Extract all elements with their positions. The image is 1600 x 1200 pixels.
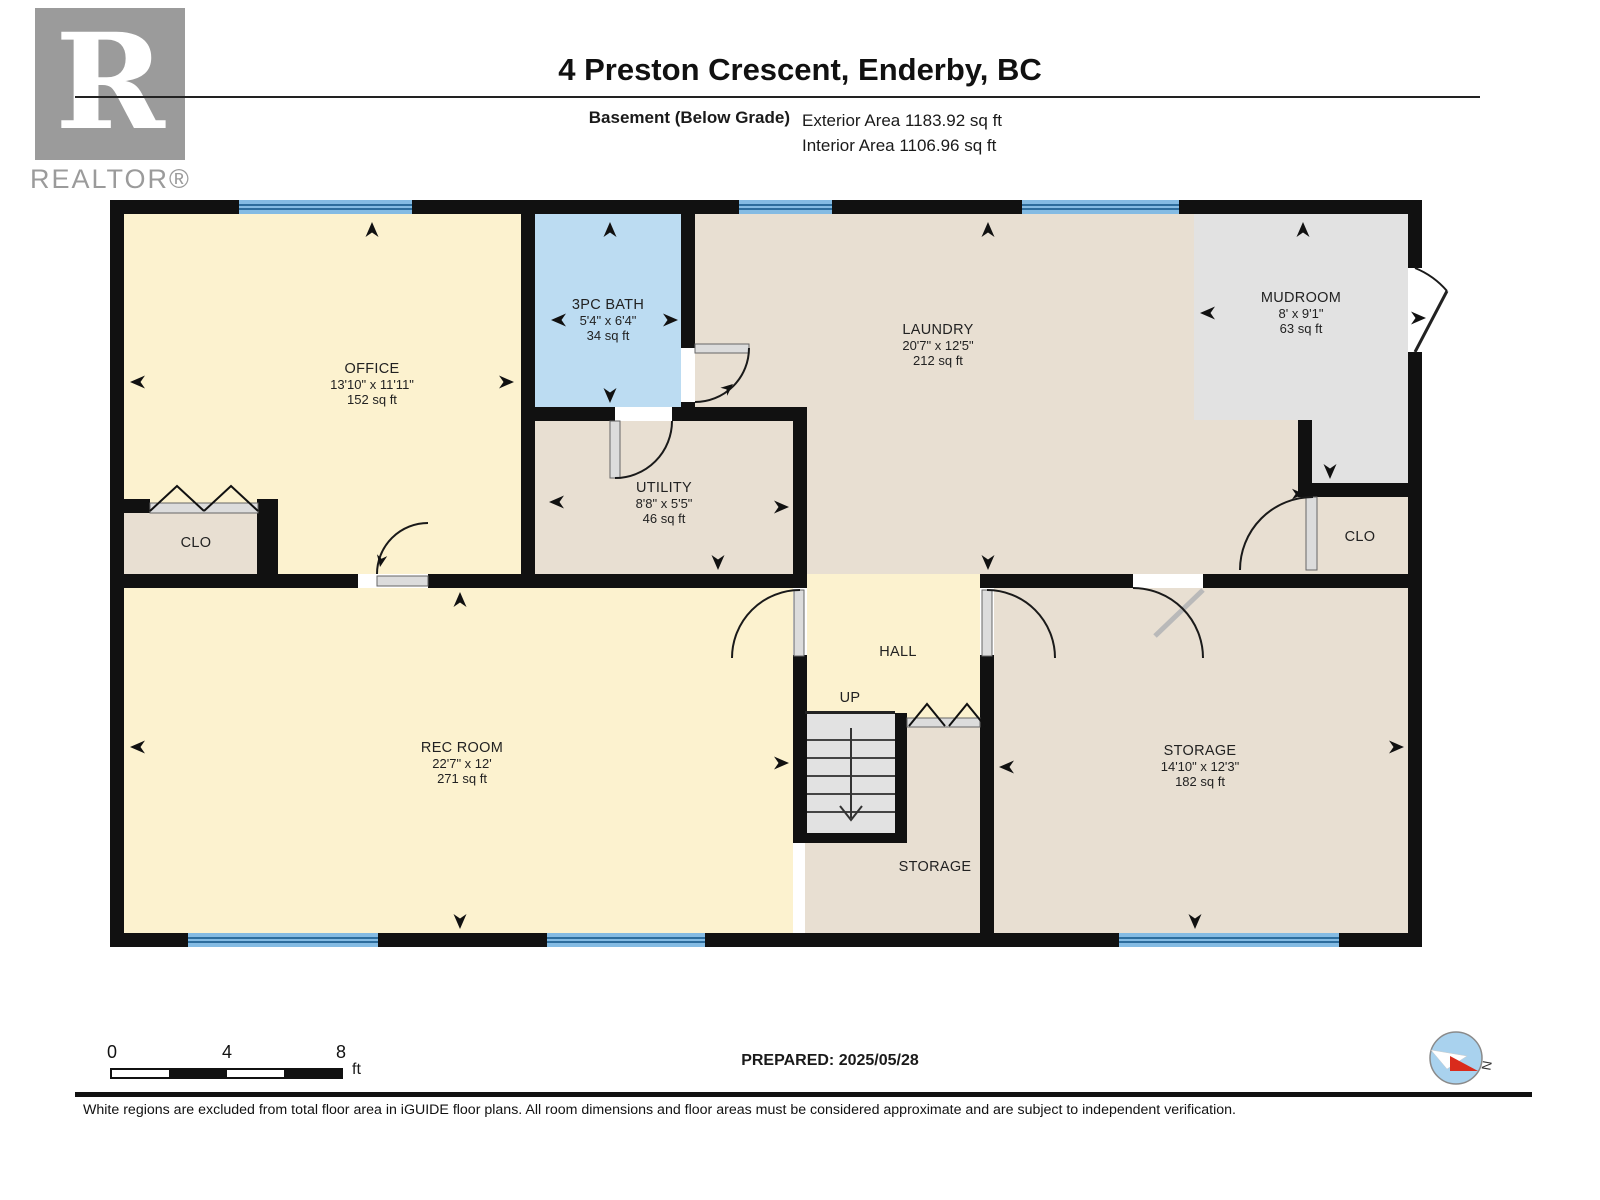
- scale-bar: [110, 1068, 343, 1079]
- room-mudroom-low: [1312, 420, 1408, 483]
- hall-left-door-leaf: [794, 590, 804, 656]
- window-bottom-storage: [1117, 933, 1341, 947]
- room-laundry: [695, 214, 1194, 407]
- wall-mid-b: [428, 574, 807, 588]
- label-closet-left: CLO: [181, 535, 212, 551]
- wall-bath-bottom-left: [521, 407, 615, 421]
- room-name: STORAGE: [1161, 743, 1240, 759]
- wall-closet-left-right: [257, 499, 278, 574]
- label-bath: 3PC BATH 5'4" x 6'4" 34 sq ft: [572, 297, 644, 343]
- wall-bath-right: [681, 214, 695, 348]
- label-mudroom: MUDROOM 8' x 9'1" 63 sq ft: [1261, 290, 1341, 336]
- room-laundry-low: [807, 407, 1194, 574]
- room-dims: 13'10" x 11'11": [330, 377, 414, 392]
- stairs-direction: UP: [840, 690, 861, 706]
- room-area: 212 sq ft: [902, 353, 973, 368]
- window-bottom-rec-2: [545, 933, 707, 947]
- wall-exterior-right-lower: [1408, 352, 1422, 947]
- label-laundry: LAUNDRY 20'7" x 12'5" 212 sq ft: [902, 322, 973, 368]
- room-name: HALL: [879, 644, 916, 660]
- scale-unit: ft: [352, 1061, 361, 1079]
- label-utility: UTILITY 8'8" x 5'5" 46 sq ft: [636, 480, 693, 526]
- disclaimer-text: White regions are excluded from total fl…: [83, 1102, 1543, 1118]
- label-storage: STORAGE 14'10" x 12'3" 182 sq ft: [1161, 743, 1240, 789]
- label-storage-small: STORAGE: [899, 859, 972, 875]
- exterior-area: Exterior Area 1183.92 sq ft: [802, 108, 1122, 133]
- room-name: 3PC BATH: [572, 297, 644, 313]
- room-name: MUDROOM: [1261, 290, 1341, 306]
- label-stairs-up: UP: [840, 690, 861, 706]
- office-door-leaf: [377, 576, 428, 586]
- label-closet-right: CLO: [1345, 529, 1376, 545]
- room-name: OFFICE: [330, 361, 414, 377]
- exterior-door-leaf: [1415, 291, 1447, 352]
- window-bottom-rec-1: [186, 933, 380, 947]
- wall-stairs-right: [895, 713, 907, 843]
- room-area: 34 sq ft: [572, 328, 644, 343]
- arrow-mudroom-right: [1411, 312, 1426, 325]
- wall-mudroom-horz: [1298, 483, 1408, 497]
- scale-tick-0: 0: [97, 1042, 127, 1063]
- wall-office-right: [521, 214, 535, 574]
- room-dims: 22'7" x 12': [421, 756, 503, 771]
- label-hall: HALL: [879, 644, 916, 660]
- exterior-door-arc: [1415, 268, 1447, 291]
- room-area: 46 sq ft: [636, 511, 693, 526]
- wall-mid-d: [1203, 574, 1408, 588]
- title-divider: [75, 96, 1480, 98]
- stairs-top-line: [805, 711, 895, 714]
- floor-label: Basement (Below Grade): [440, 108, 790, 128]
- wall-bath-bottom-right: [672, 407, 807, 421]
- realtor-brand-text: REALTOR®: [30, 164, 200, 195]
- room-dims: 20'7" x 12'5": [902, 338, 973, 353]
- wall-stairs-bottom: [793, 833, 907, 843]
- wall-mid-c: [980, 574, 1133, 588]
- floorplan-page: R REALTOR® 4 Preston Crescent, Enderby, …: [0, 0, 1600, 1200]
- room-name: LAUNDRY: [902, 322, 973, 338]
- room-name: CLO: [1345, 529, 1376, 545]
- room-name: CLO: [181, 535, 212, 551]
- area-summary: Exterior Area 1183.92 sq ft Interior Are…: [802, 108, 1122, 158]
- window-top-laundry-1: [737, 200, 834, 214]
- room-name: STORAGE: [899, 859, 972, 875]
- label-rec-room: REC ROOM 22'7" x 12' 271 sq ft: [421, 740, 503, 786]
- wall-hall-left: [793, 655, 807, 843]
- wall-closet-left-stub: [124, 499, 150, 513]
- room-laundry-jut: [1194, 420, 1312, 574]
- label-office: OFFICE 13'10" x 11'11" 152 sq ft: [330, 361, 414, 407]
- room-dims: 8' x 9'1": [1261, 306, 1341, 321]
- room-area: 63 sq ft: [1261, 321, 1341, 336]
- room-name: REC ROOM: [421, 740, 503, 756]
- room-area: 152 sq ft: [330, 392, 414, 407]
- interior-area: Interior Area 1106.96 sq ft: [802, 133, 1122, 158]
- hall-right-door-leaf: [982, 590, 992, 656]
- wall-storage-left: [980, 655, 994, 933]
- stairwell: [805, 713, 895, 833]
- room-dims: 5'4" x 6'4": [572, 313, 644, 328]
- room-name: UTILITY: [636, 480, 693, 496]
- page-title: 4 Preston Crescent, Enderby, BC: [0, 52, 1600, 88]
- room-dims: 8'8" x 5'5": [636, 496, 693, 511]
- scale-tick-4: 4: [212, 1042, 242, 1063]
- wall-exterior-right-upper: [1408, 200, 1422, 268]
- compass-north-label: N: [1478, 1060, 1494, 1072]
- wall-utility-right: [793, 407, 807, 588]
- window-top-office: [237, 200, 414, 214]
- room-dims: 14'10" x 12'3": [1161, 759, 1240, 774]
- window-top-laundry-2: [1020, 200, 1181, 214]
- prepared-date: PREPARED: 2025/05/28: [600, 1052, 1060, 1070]
- footer-divider: [75, 1092, 1532, 1097]
- room-area: 182 sq ft: [1161, 774, 1240, 789]
- room-area: 271 sq ft: [421, 771, 503, 786]
- scale-tick-8: 8: [326, 1042, 356, 1063]
- wall-mid-a: [110, 574, 358, 588]
- compass-icon: [1430, 1032, 1482, 1084]
